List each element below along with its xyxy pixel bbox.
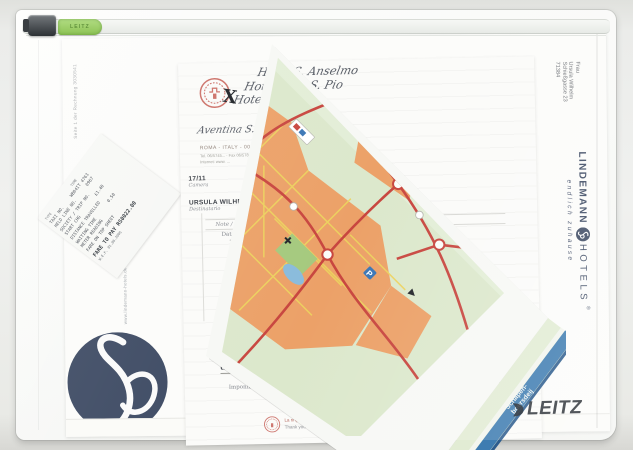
brand-tagline: endlich zuhause	[565, 180, 573, 310]
pouch-seam-left	[38, 40, 39, 430]
lindemann-brand: LINDEMANN HOTELS ® endlich zuhause	[565, 151, 591, 310]
recipient-line: Ursula Wilhelm	[567, 62, 574, 102]
pouch-seam-right	[596, 26, 598, 428]
zip-tab-label: LEITZ	[70, 24, 90, 30]
letter-website: www.lindemann-hotels.de	[122, 267, 128, 324]
zip-pouch: Seite 1 der Rechnung 3030541 www.lindema…	[16, 10, 616, 440]
leitz-logo: LEITZ	[508, 397, 582, 421]
city-map: Schapen- boersdeij	[184, 24, 566, 450]
product-photo: Seite 1 der Rechnung 3030541 www.lindema…	[0, 0, 633, 450]
brand-word: HOTELS	[578, 244, 590, 303]
brand-name: LINDEMANN	[577, 151, 589, 224]
recipient-line: Frau	[574, 61, 581, 101]
zip-rail	[22, 19, 610, 34]
leitz-arrow-icon	[509, 402, 525, 418]
zip-slider-icon	[28, 15, 56, 36]
leitz-wordmark: LEITZ	[526, 397, 582, 420]
zip-pull-tab: LEITZ	[58, 19, 102, 35]
brand-registered-mark: ®	[585, 306, 591, 310]
zip-rail-line	[26, 35, 606, 36]
letter-page-note: Seite 1 der Rechnung 3030541	[72, 64, 78, 139]
lindemann-logo-icon	[576, 227, 590, 241]
